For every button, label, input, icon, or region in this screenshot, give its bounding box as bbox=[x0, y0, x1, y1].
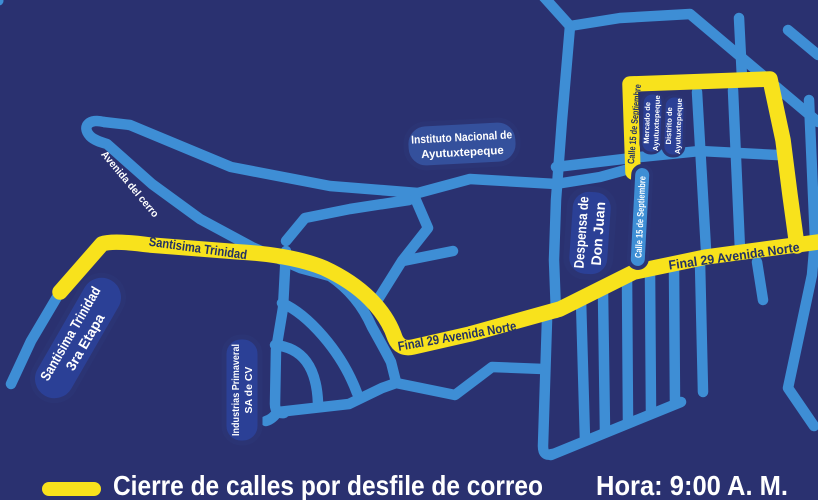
svg-text:Hora: 9:00 A. M.: Hora: 9:00 A. M. bbox=[596, 470, 788, 500]
svg-text:Industrias Primaveral: Industrias Primaveral bbox=[230, 344, 242, 436]
svg-text:SA de CV: SA de CV bbox=[243, 367, 255, 414]
svg-text:Cierre de calles por desfile d: Cierre de calles por desfile de correo bbox=[113, 470, 543, 500]
